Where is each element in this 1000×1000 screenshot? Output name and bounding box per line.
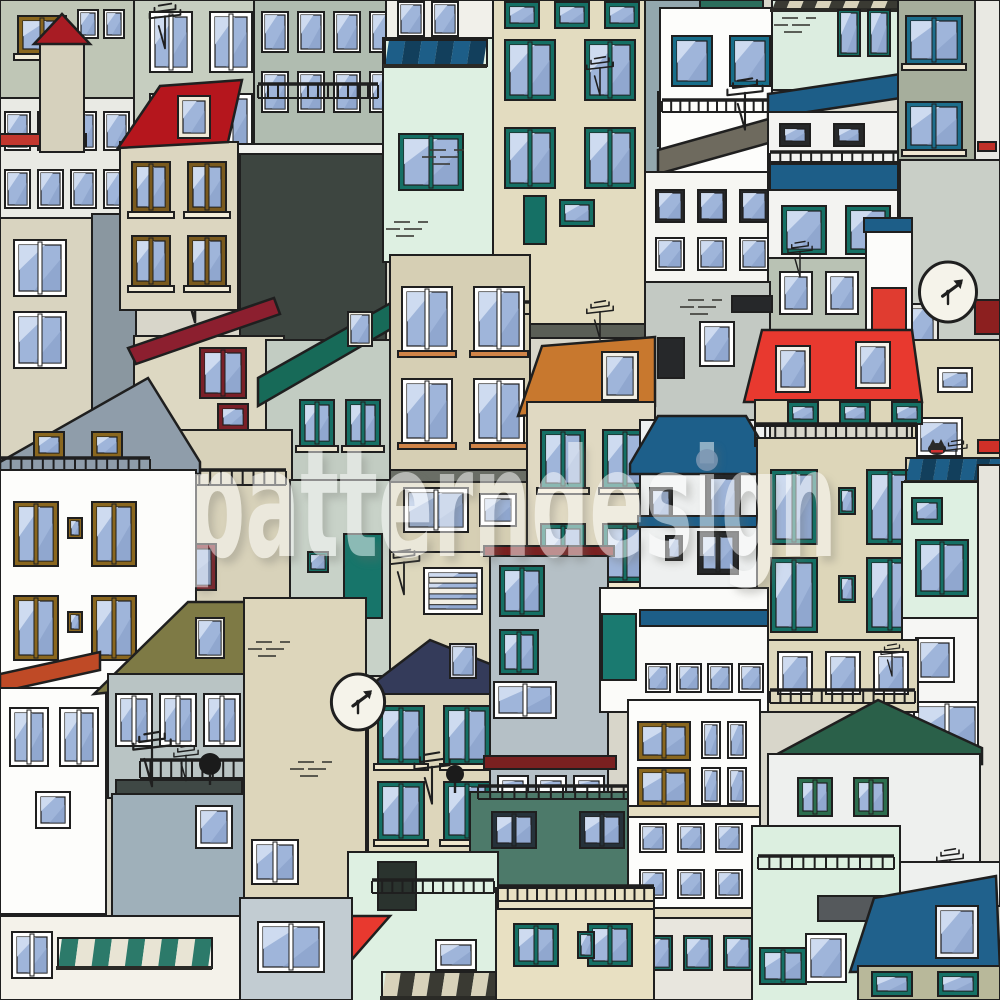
teal-panel-door bbox=[602, 614, 636, 680]
window bbox=[500, 630, 538, 674]
cream-band bbox=[628, 806, 760, 817]
city-illustration: patterndesign bbox=[0, 0, 1000, 1000]
navy-band bbox=[640, 610, 768, 626]
red-mark bbox=[978, 142, 996, 151]
navy-balcony-panel bbox=[770, 162, 914, 190]
big-red-roof bbox=[744, 330, 922, 402]
window bbox=[806, 934, 846, 982]
window bbox=[494, 682, 556, 718]
window bbox=[778, 652, 908, 694]
window bbox=[760, 948, 806, 984]
green-striped-awning bbox=[56, 938, 212, 970]
roof-skylight bbox=[856, 342, 890, 388]
roof-skylight bbox=[776, 346, 810, 392]
gable-tower bbox=[40, 40, 84, 152]
navy-striped-awning bbox=[383, 40, 487, 68]
window bbox=[505, 2, 639, 28]
roof-skylight bbox=[602, 352, 638, 400]
teal-door bbox=[524, 196, 546, 244]
vent-window bbox=[658, 338, 684, 378]
navy-cap bbox=[864, 218, 912, 232]
roof-skylight bbox=[348, 312, 372, 346]
roof-skylight bbox=[450, 644, 476, 678]
window bbox=[200, 348, 246, 398]
window bbox=[700, 322, 734, 366]
window bbox=[656, 190, 768, 222]
window bbox=[196, 806, 232, 848]
terrace-band bbox=[116, 780, 242, 794]
vent-window bbox=[578, 932, 594, 958]
roof-skylight bbox=[936, 906, 978, 958]
window bbox=[938, 368, 972, 392]
wall-clock-right bbox=[920, 262, 977, 322]
window bbox=[916, 638, 954, 682]
window bbox=[252, 840, 298, 884]
roof-skylight bbox=[178, 96, 210, 138]
window bbox=[638, 722, 690, 760]
window bbox=[12, 932, 52, 978]
maroon-block bbox=[975, 300, 1000, 334]
window bbox=[656, 238, 768, 270]
window bbox=[436, 940, 476, 970]
window bbox=[644, 936, 752, 970]
window bbox=[560, 200, 594, 226]
open-window bbox=[399, 134, 463, 190]
watermark: patterndesign bbox=[187, 418, 837, 592]
favela-city-pattern: patterndesign bbox=[0, 0, 1000, 1000]
white-coping bbox=[236, 144, 390, 154]
roof-box bbox=[732, 296, 772, 312]
window bbox=[916, 540, 968, 596]
wall-clock-center bbox=[331, 674, 384, 730]
watermark-text: patterndesign bbox=[187, 418, 837, 592]
window bbox=[912, 498, 942, 524]
watermark-i-dot bbox=[696, 449, 718, 471]
charcoal-door bbox=[378, 862, 416, 910]
roof-skylight bbox=[196, 618, 224, 658]
maroon-trim bbox=[484, 756, 616, 769]
bldg-edge-right2 bbox=[978, 465, 1000, 885]
red-band bbox=[978, 440, 1000, 453]
window bbox=[36, 792, 70, 828]
window bbox=[258, 922, 324, 972]
window bbox=[116, 694, 240, 746]
striped-awning bbox=[380, 972, 504, 1000]
window bbox=[638, 768, 690, 806]
